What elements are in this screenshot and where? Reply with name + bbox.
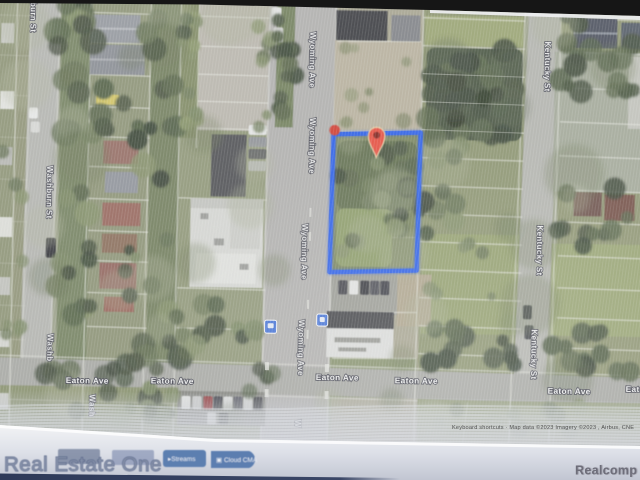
svg-text:▣ Cloud CMA: ▣ Cloud CMA xyxy=(216,457,258,464)
svg-text:Realcomp: Realcomp xyxy=(575,464,637,478)
svg-text:▸Streams: ▸Streams xyxy=(168,456,196,463)
svg-text:Keyboard shortcuts · Map data: Keyboard shortcuts · Map data ©2023 Imag… xyxy=(452,424,634,431)
svg-text:Real Estate One: Real Estate One xyxy=(4,453,162,476)
